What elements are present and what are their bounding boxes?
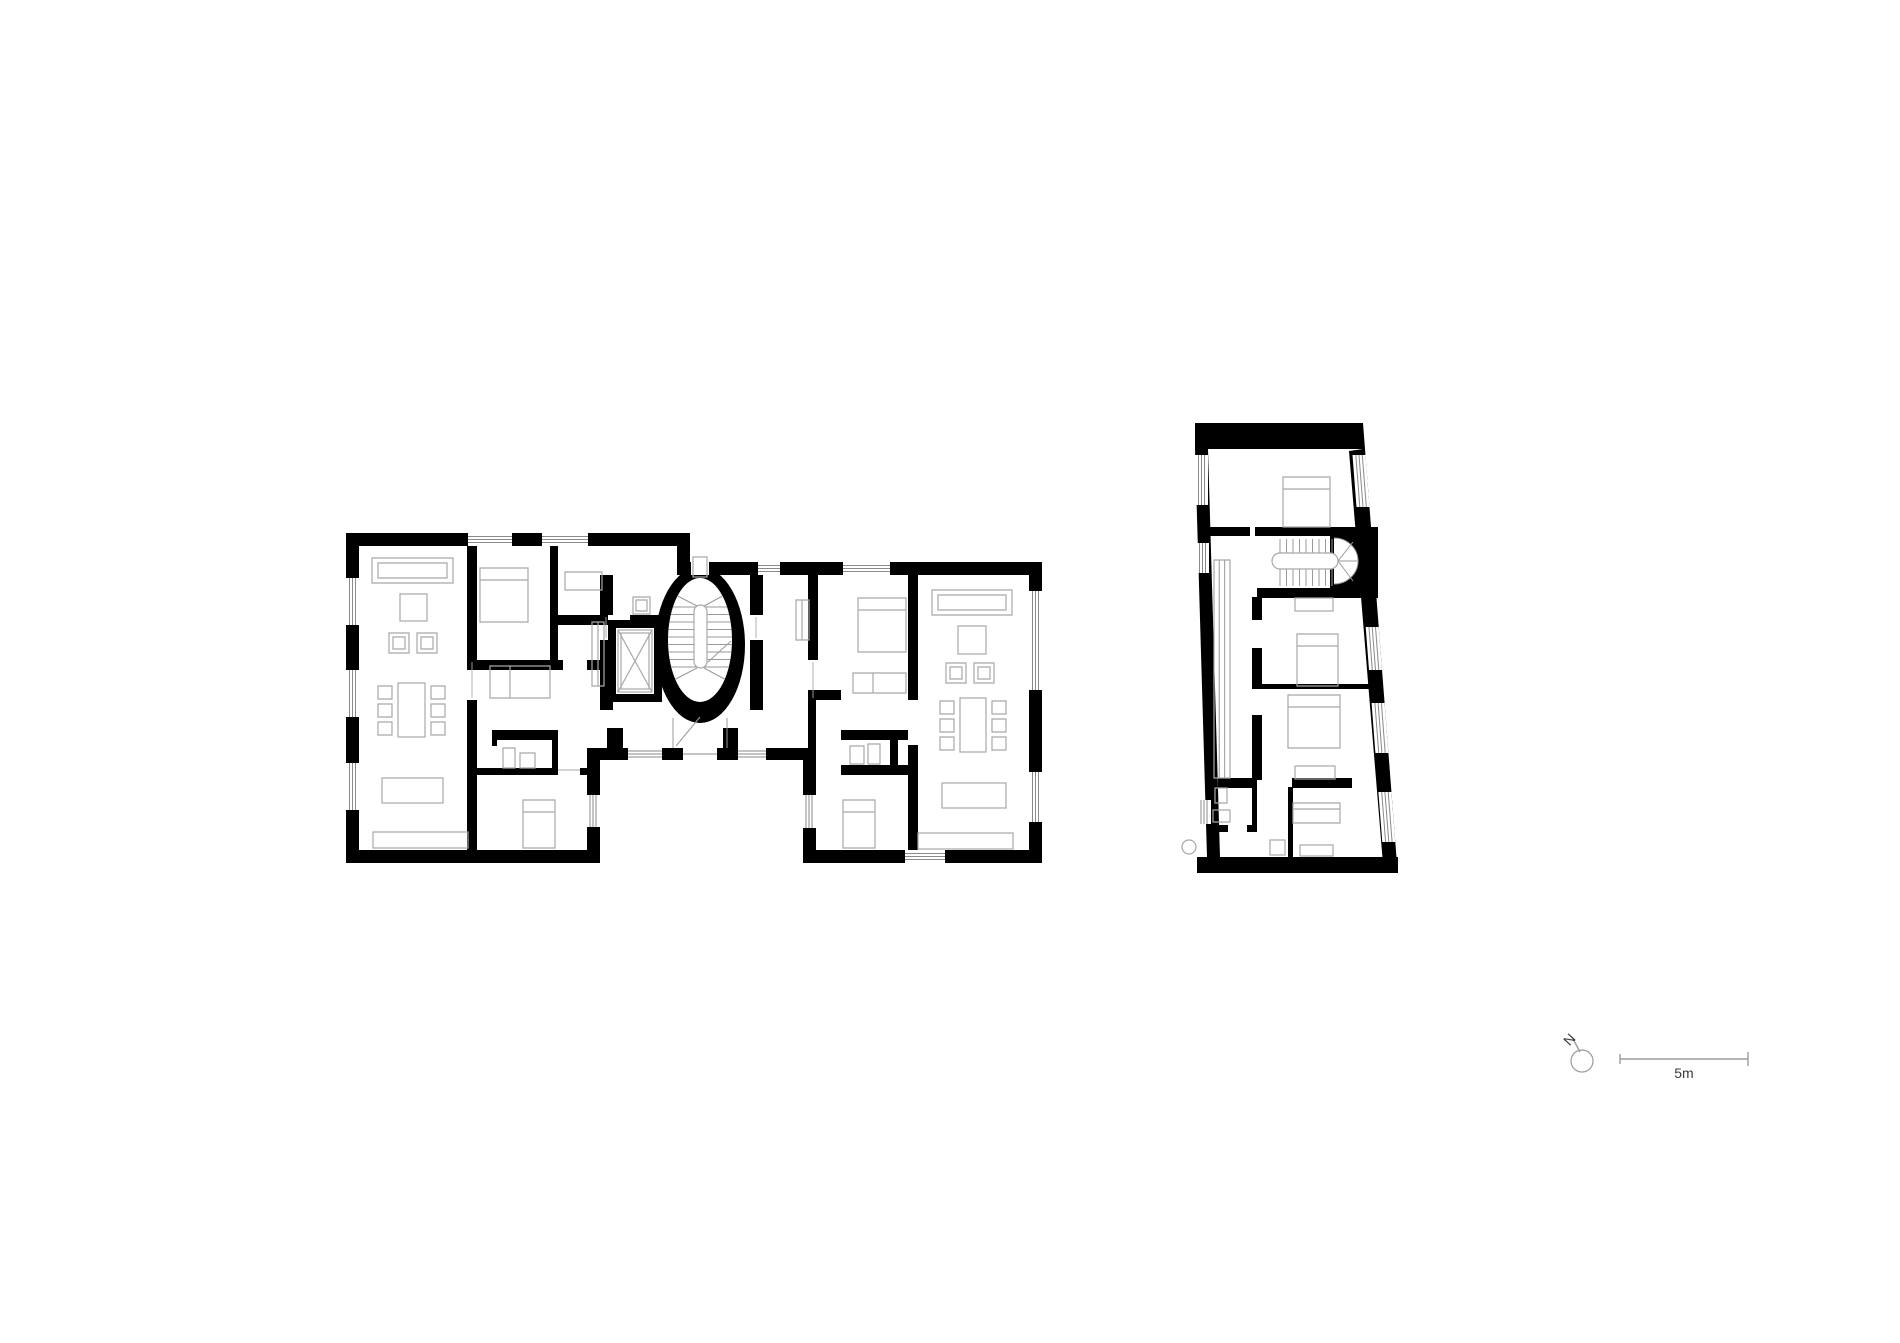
scale-bar-line: [1620, 1052, 1748, 1066]
sofa: [1293, 803, 1340, 823]
closet: [853, 673, 906, 693]
bed: [1288, 695, 1340, 748]
shelf: [1295, 766, 1335, 779]
entrance-column: [1182, 840, 1196, 854]
wall-bench: [918, 833, 1013, 849]
floor-plan-canvas: N 5m: [0, 0, 1900, 1343]
north-arrow: N: [1560, 1030, 1593, 1072]
bed: [480, 568, 528, 622]
dining-table: [960, 698, 986, 752]
stair-handrail: [1272, 553, 1338, 569]
bed: [523, 800, 555, 848]
annex-stair: [1272, 538, 1358, 586]
right-apartment-furniture: [796, 590, 1013, 849]
corridor-wardrobe: [796, 600, 809, 640]
north-label: N: [1560, 1030, 1579, 1048]
closet: [490, 666, 550, 698]
living-room-sideboard: [932, 590, 1012, 615]
scale-label: 5m: [1674, 1065, 1693, 1081]
entrance-door-leaf: [676, 717, 700, 746]
shelf: [1300, 845, 1333, 856]
elevator: [608, 620, 662, 702]
kitchen-fixtures: [503, 748, 535, 768]
bed: [858, 598, 906, 652]
sofa: [942, 783, 1006, 808]
main-building-plan: [346, 533, 1042, 863]
bathroom-fixtures: [850, 744, 880, 764]
dining-table: [398, 683, 425, 737]
dining-chairs: [378, 686, 445, 735]
annex-building-plan: [1182, 423, 1398, 873]
tv-table: [400, 594, 427, 621]
living-room-sideboard: [372, 558, 453, 583]
stair-niche-opening: [691, 562, 709, 575]
shower-fixture: [1270, 840, 1285, 855]
shelf: [1295, 598, 1333, 611]
bed: [1297, 634, 1338, 686]
bed: [843, 800, 875, 848]
stair-core: [655, 557, 745, 748]
wall-bench: [373, 832, 468, 848]
floor-plan-sheet: N 5m: [0, 0, 1900, 1343]
stools: [946, 663, 994, 683]
dining-chairs: [940, 701, 1006, 750]
tv-table: [958, 626, 986, 654]
stair-handrail: [694, 605, 707, 668]
bed: [1283, 477, 1330, 527]
stools: [389, 633, 437, 653]
scale-bar: 5m: [1620, 1052, 1748, 1081]
sofa: [382, 778, 443, 803]
north-arrow-circle: [1571, 1050, 1593, 1072]
